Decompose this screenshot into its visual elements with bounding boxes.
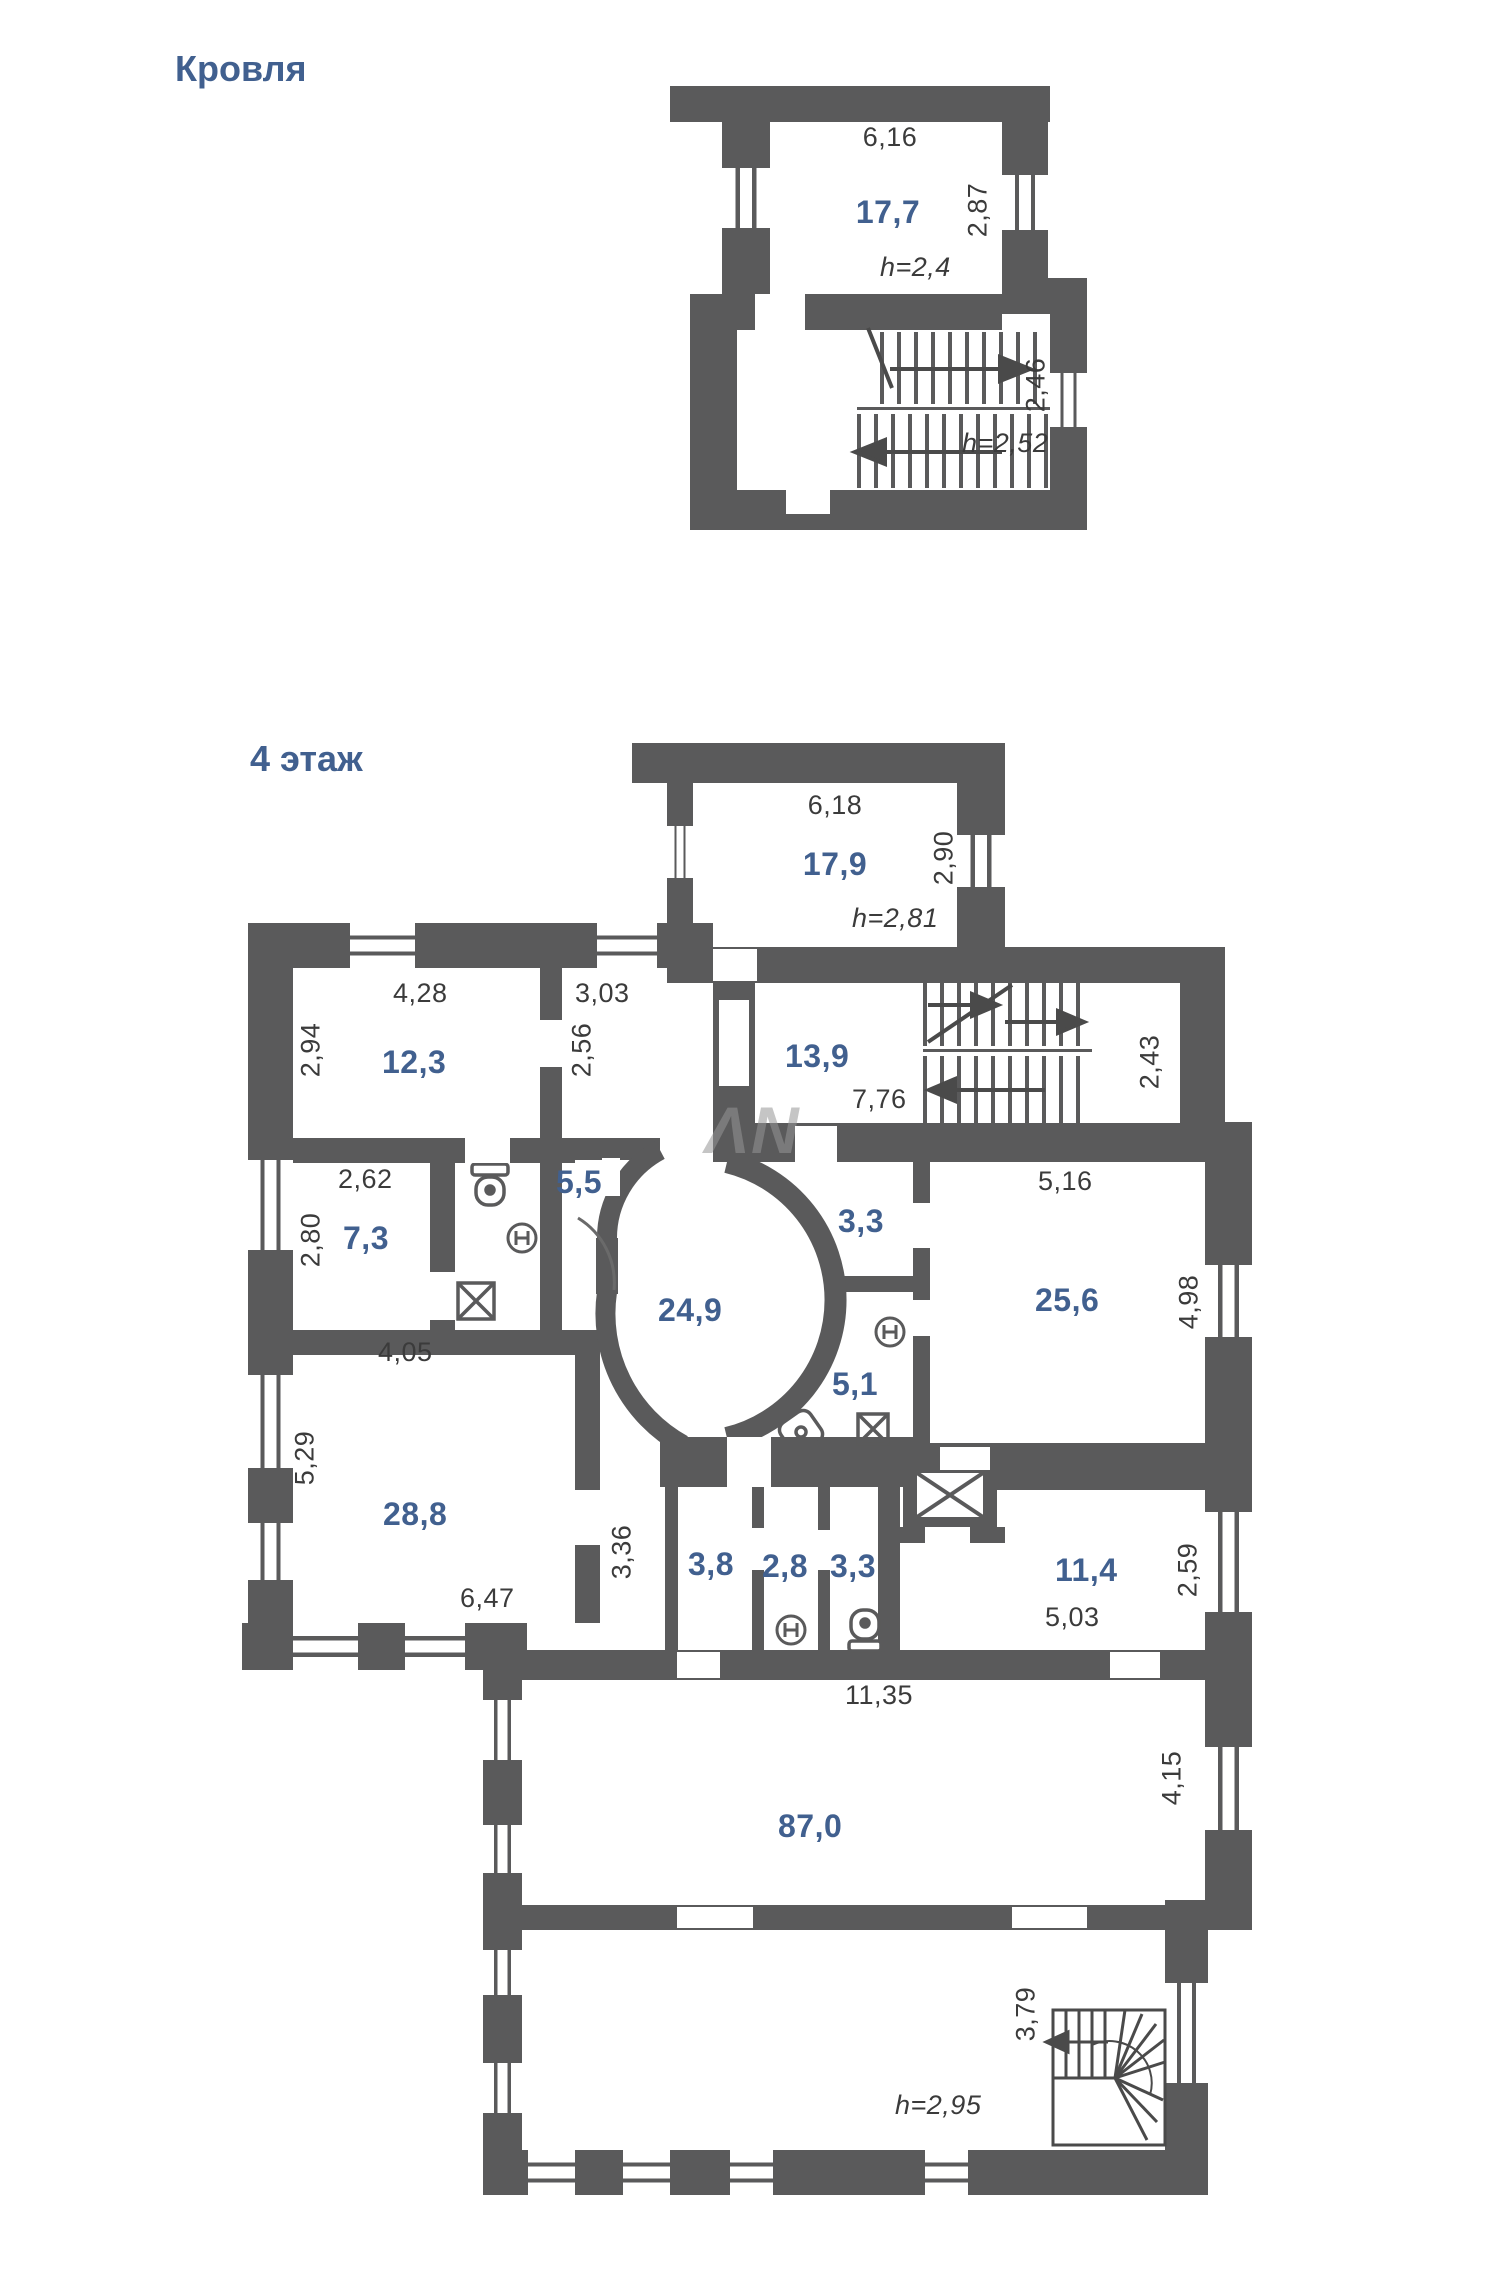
door-opening xyxy=(713,949,757,981)
dim-label: 4,15 xyxy=(1157,1751,1188,1806)
room-area-label: 28,8 xyxy=(383,1496,447,1533)
ceiling-height-label: h=2,4 xyxy=(880,252,951,283)
room-area-label: 25,6 xyxy=(1035,1282,1099,1319)
plan-graphics xyxy=(0,0,1500,2285)
door-opening xyxy=(755,294,805,330)
roof-title: Кровля xyxy=(175,48,306,90)
door-opening xyxy=(1012,1907,1087,1928)
door-opening xyxy=(913,1300,930,1336)
dim-label: 4,98 xyxy=(1174,1275,1205,1330)
arrow-left-icon xyxy=(1046,2032,1068,2052)
dim-label: 6,18 xyxy=(775,790,895,821)
floor4-stairs-marks xyxy=(928,985,1084,1101)
arrow-left-icon xyxy=(855,440,885,464)
winder-stairs xyxy=(1046,2010,1165,2145)
door-opening xyxy=(727,1437,771,1487)
dim-label: 5,03 xyxy=(1045,1602,1100,1633)
room-area-label: 3,3 xyxy=(838,1203,884,1240)
dim-label: 6,16 xyxy=(830,122,950,153)
dim-label: 2,80 xyxy=(296,1213,327,1268)
dim-label: 3,36 xyxy=(607,1525,638,1580)
door-opening xyxy=(786,490,830,514)
door-opening xyxy=(795,1126,837,1162)
arrow-right-icon xyxy=(1058,1011,1084,1033)
room-area-label: 7,3 xyxy=(343,1220,389,1257)
room-area-label: 5,1 xyxy=(832,1366,878,1403)
dim-label: 2,94 xyxy=(296,1023,327,1078)
room-area-label: 3,8 xyxy=(688,1546,734,1583)
floor4-title: 4 этаж xyxy=(250,738,363,780)
dim-label: 4,05 xyxy=(378,1337,433,1368)
room-area-label: 17,7 xyxy=(828,194,948,231)
room-area-label: 5,5 xyxy=(556,1164,602,1201)
dim-label: 2,46 xyxy=(1021,358,1052,413)
door-opening xyxy=(818,1530,830,1570)
door-opening xyxy=(925,1527,970,1543)
door-opening xyxy=(1110,1652,1160,1678)
room-area-label: 3,3 xyxy=(830,1548,876,1585)
room-area-label: 87,0 xyxy=(778,1808,842,1845)
elevator-icon xyxy=(917,1473,983,1517)
dim-label: 2,59 xyxy=(1173,1543,1204,1598)
dim-label: 6,47 xyxy=(460,1583,515,1614)
door-opening xyxy=(430,1272,455,1320)
ceiling-height-label: h=2,81 xyxy=(852,903,938,934)
dim-label: 2,43 xyxy=(1135,1035,1166,1090)
dim-label: 4,28 xyxy=(393,978,448,1009)
room-area-label: 11,4 xyxy=(1055,1552,1118,1589)
door-opening xyxy=(677,1652,720,1678)
dim-label: 2,56 xyxy=(567,1023,598,1078)
room-area-label: 24,9 xyxy=(658,1292,722,1329)
dim-label: 5,16 xyxy=(1038,1166,1093,1197)
door-opening xyxy=(913,1203,930,1248)
door-opening xyxy=(465,1138,510,1163)
dim-label: 2,90 xyxy=(929,831,960,886)
dim-label: 2,62 xyxy=(338,1164,393,1195)
ceiling-height-label: h=2,52 xyxy=(962,428,1048,459)
dim-label: 11,35 xyxy=(845,1680,913,1711)
dim-label: 2,87 xyxy=(963,183,994,238)
door-opening xyxy=(940,1447,990,1470)
door-opening xyxy=(602,1158,620,1196)
room-area-label: 17,9 xyxy=(775,846,895,883)
door-opening xyxy=(575,1490,600,1545)
dim-label: 5,29 xyxy=(290,1431,321,1486)
room-area-label: 12,3 xyxy=(382,1044,446,1081)
dim-label: 7,76 xyxy=(852,1084,907,1115)
room-area-label: 2,8 xyxy=(762,1548,808,1585)
door-opening xyxy=(677,1907,753,1928)
arrow-left-icon xyxy=(929,1079,955,1101)
floorplan-canvas: ΛN xyxy=(0,0,1500,2285)
room-area-label: 13,9 xyxy=(785,1038,849,1075)
ceiling-height-label: h=2,95 xyxy=(895,2090,981,2121)
dim-label: 3,79 xyxy=(1011,1987,1042,2042)
door-opening xyxy=(540,1020,562,1067)
dim-label: 3,03 xyxy=(575,978,630,1009)
